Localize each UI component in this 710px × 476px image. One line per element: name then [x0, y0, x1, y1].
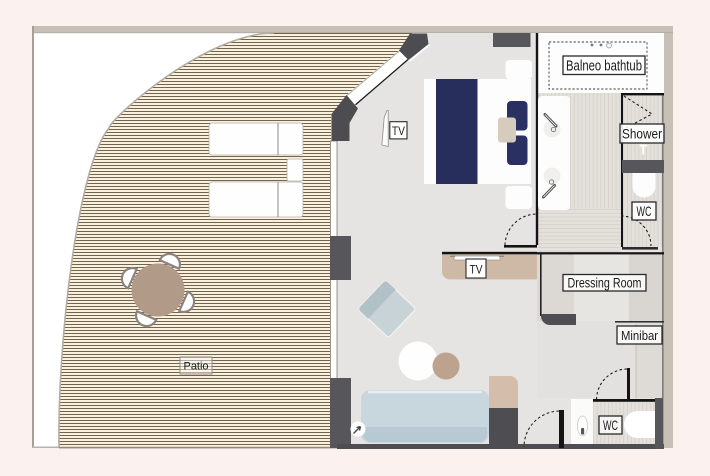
- svg-text:Patio: Patio: [184, 361, 209, 373]
- svg-text:Balneo bathtub: Balneo bathtub: [566, 59, 642, 75]
- svg-text:WC: WC: [637, 203, 652, 219]
- svg-text:Shower: Shower: [622, 126, 662, 142]
- svg-text:Minibar: Minibar: [621, 328, 659, 343]
- svg-text:Dressing Room: Dressing Room: [568, 276, 642, 291]
- svg-text:TV: TV: [392, 124, 405, 138]
- svg-text:WC: WC: [603, 417, 618, 433]
- svg-text:TV: TV: [470, 262, 483, 276]
